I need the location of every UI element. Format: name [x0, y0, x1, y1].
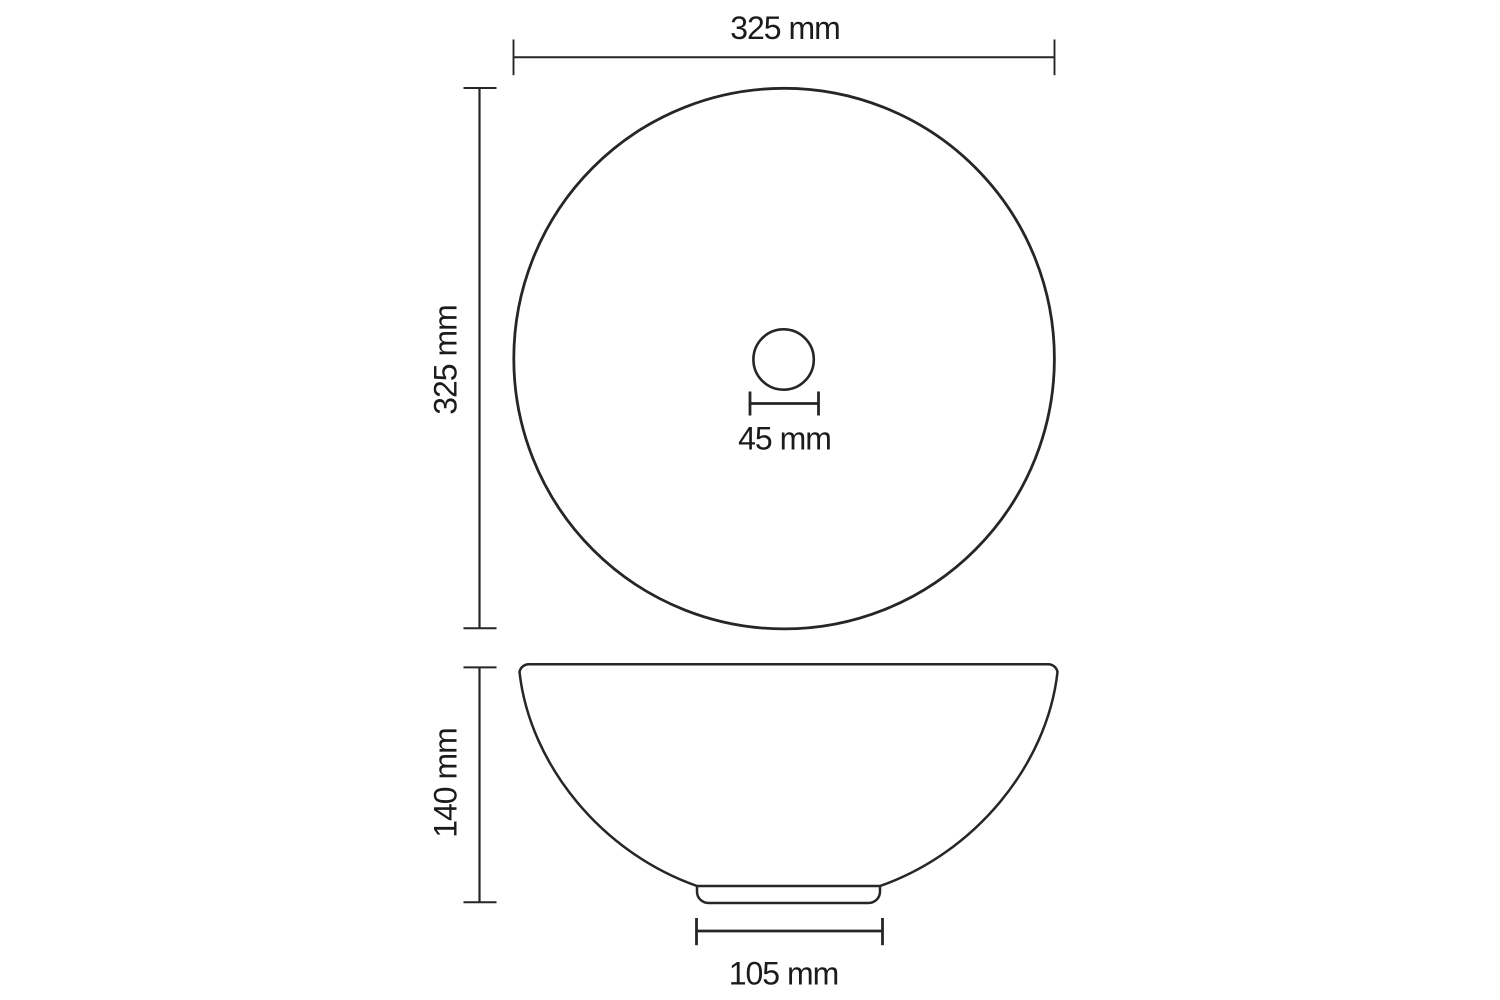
svg-text:140 mm: 140 mm: [428, 728, 464, 838]
svg-text:325 mm: 325 mm: [730, 10, 840, 46]
svg-text:45 mm: 45 mm: [738, 421, 831, 457]
svg-text:325 mm: 325 mm: [428, 305, 464, 415]
svg-text:105 mm: 105 mm: [729, 956, 839, 992]
